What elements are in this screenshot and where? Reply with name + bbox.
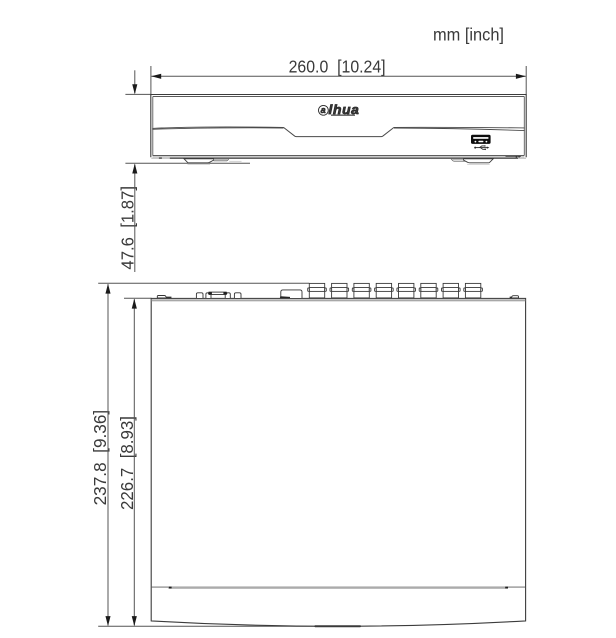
svg-text:260.0 [10.24]: 260.0 [10.24] (289, 56, 386, 76)
svg-text:237.8 [9.36]: 237.8 [9.36] (90, 410, 110, 506)
svg-text:a: a (321, 105, 326, 115)
svg-text:mm [inch]: mm [inch] (433, 25, 504, 45)
